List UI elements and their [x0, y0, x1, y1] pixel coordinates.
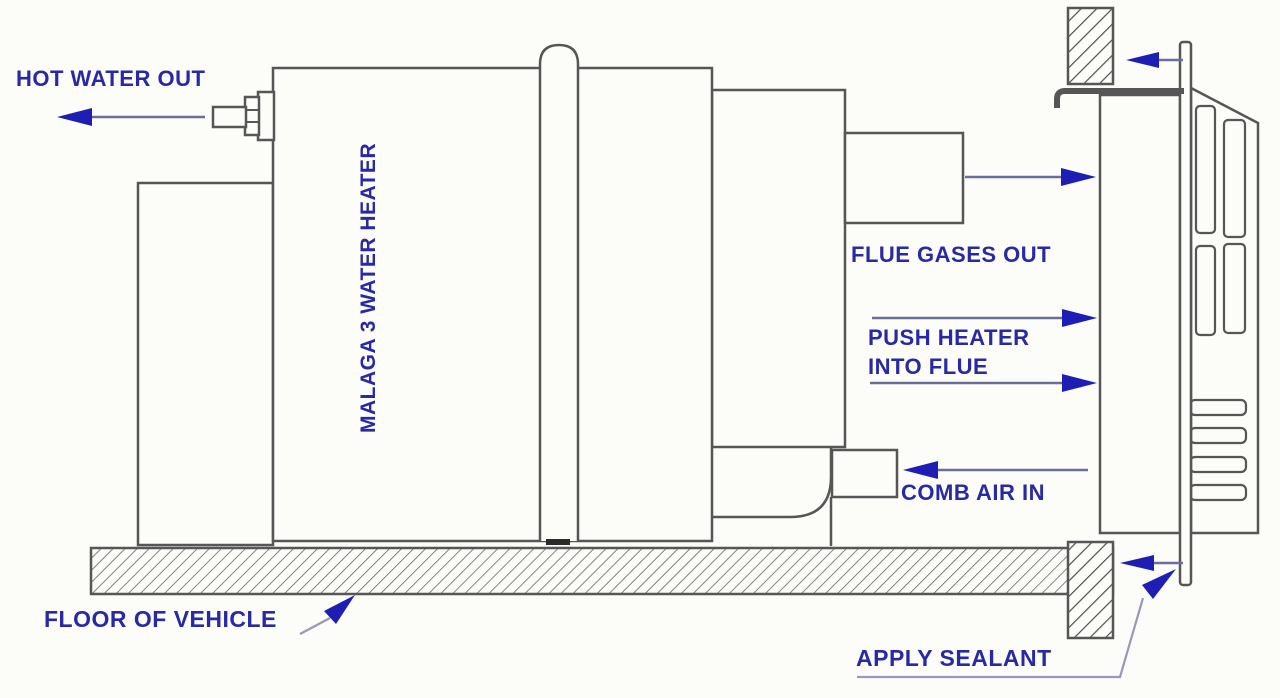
diagram-page: HOT WATER OUT MALAGA 3 WATER HEATER FLUE…	[0, 0, 1280, 698]
heater-name-label: MALAGA 3 WATER HEATER	[355, 157, 381, 433]
heater-rear-section	[712, 90, 845, 447]
plate-floor-seal-arrow	[1120, 555, 1183, 571]
hot-water-outlet-nozzle	[213, 107, 246, 127]
heater-body	[273, 68, 712, 541]
comb-air-in-arrow	[903, 461, 1088, 479]
wall-opening-edge-block	[1068, 8, 1113, 84]
push-heater-into-flue-label: PUSH HEATER INTO FLUE	[868, 323, 1083, 381]
floor-of-vehicle-label: FLOOR OF VEHICLE	[44, 604, 277, 634]
flue-gases-outlet-stub	[845, 133, 963, 223]
heater-tube	[540, 45, 578, 541]
floor-of-vehicle-leader-arrow	[300, 595, 355, 634]
flue-gases-out-arrow	[965, 168, 1096, 186]
comb-air-in-label: COMB AIR IN	[901, 478, 1045, 507]
floor-opening-edge-block	[1068, 542, 1113, 638]
apply-sealant-label: APPLY SEALANT	[856, 643, 1052, 673]
hot-water-fitting-flange	[258, 92, 274, 140]
wall-top-push-arrow	[1126, 52, 1183, 68]
flue-gases-out-label: FLUE GASES OUT	[851, 240, 1051, 269]
hot-water-out-label: HOT WATER OUT	[16, 64, 205, 93]
comb-air-inlet-stub	[832, 450, 897, 497]
left-box	[138, 183, 273, 545]
hot-water-out-arrow	[57, 108, 205, 126]
vehicle-floor-section	[91, 548, 1113, 594]
heater-base-tick	[546, 539, 570, 545]
flue-outer-tube	[1100, 95, 1180, 533]
flue-mounting-plate	[1180, 42, 1191, 585]
heater-installation-drawing	[0, 0, 1280, 698]
lower-duct	[712, 447, 831, 517]
